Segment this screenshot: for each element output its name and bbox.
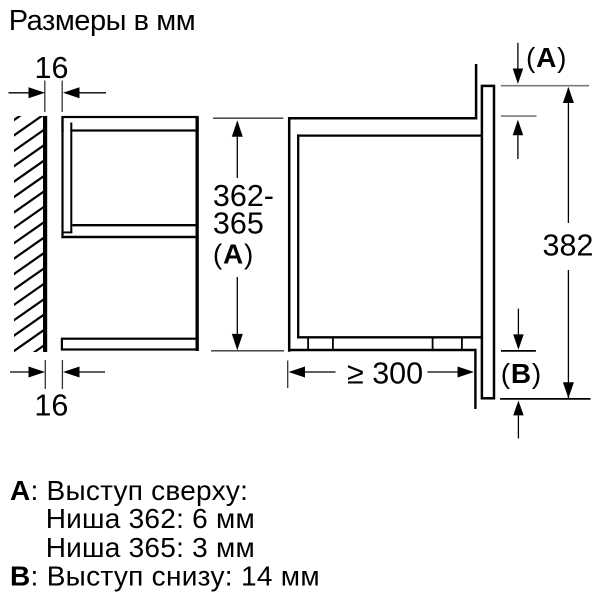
svg-text:Ниша 362: 6 мм: Ниша 362: 6 мм xyxy=(46,503,255,534)
svg-text:B: Выступ снизу: 14 мм: B: Выступ снизу: 14 мм xyxy=(10,561,320,592)
svg-text:Ниша 365: 3 мм: Ниша 365: 3 мм xyxy=(46,532,255,563)
svg-text:16: 16 xyxy=(35,51,69,85)
svg-text:382: 382 xyxy=(543,229,594,263)
svg-text:A: Выступ сверху:: A: Выступ сверху: xyxy=(10,475,248,506)
svg-text:16: 16 xyxy=(34,389,68,423)
svg-text:365: 365 xyxy=(213,207,264,241)
svg-text:(B): (B) xyxy=(501,358,542,389)
svg-text:≥ 300: ≥ 300 xyxy=(347,357,423,391)
svg-text:(A): (A) xyxy=(526,42,567,73)
svg-text:Размеры в мм: Размеры в мм xyxy=(9,5,196,37)
svg-text:(А): (А) xyxy=(213,239,254,270)
